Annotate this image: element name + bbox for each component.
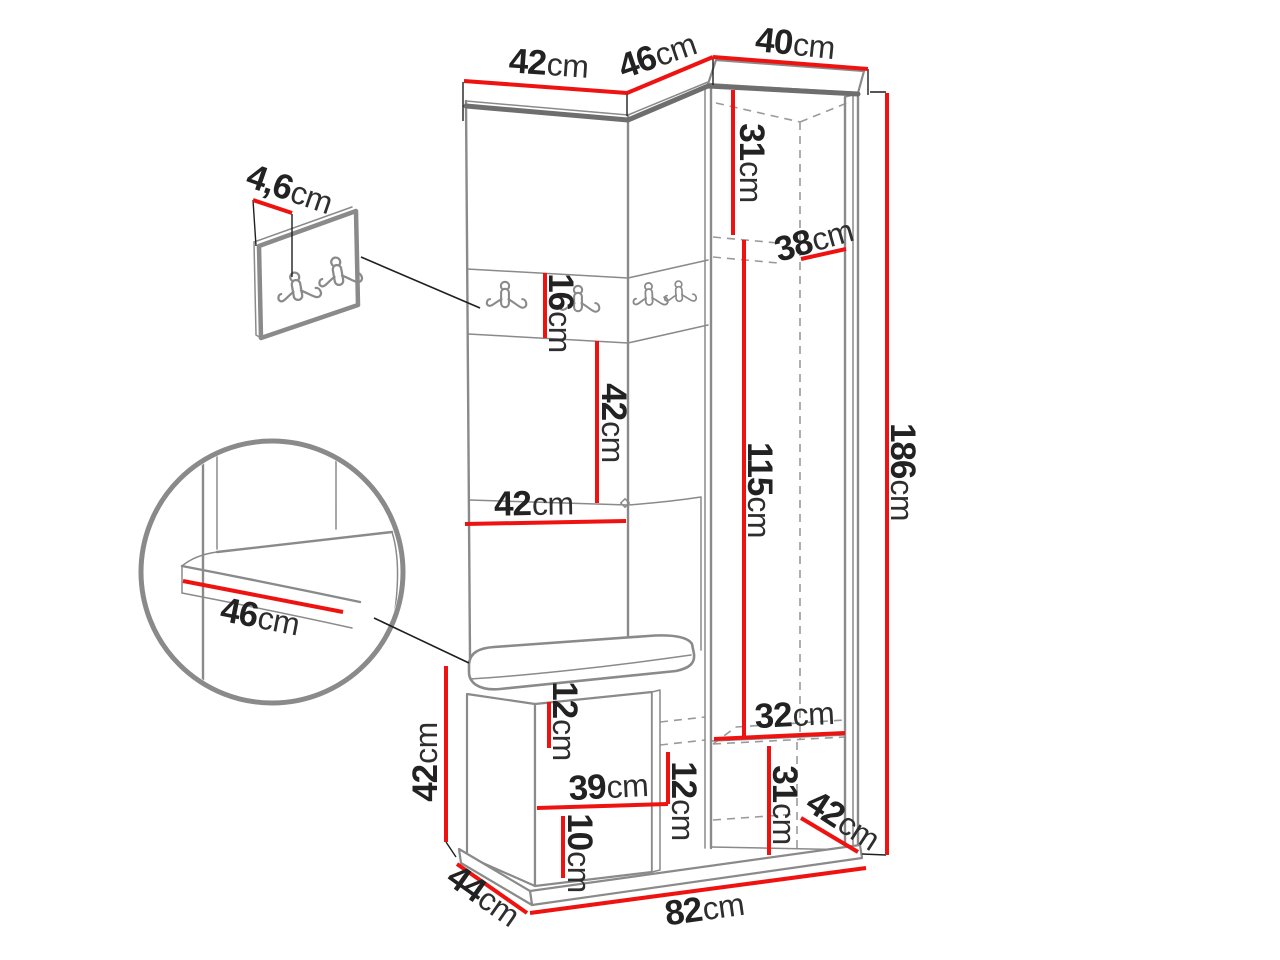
dimension-label-total-height: 186cm (883, 423, 922, 521)
wall-hook-panel-detail (254, 207, 363, 338)
leader-wall-panel-to-unit (361, 257, 480, 308)
angled-panel-face (628, 82, 708, 658)
dimension-label-cabinet-lower-width: 32cm (754, 693, 836, 736)
dimension-label-bench-top-clearance: 12cm (545, 681, 584, 761)
dimension-label-base-width: 82cm (662, 884, 746, 934)
dimension-label-top-angled-width: 46cm (613, 24, 701, 87)
diagram-canvas: 42cm 46cm 40cm 4,6cm 31cm 38cm 16cm 42cm… (0, 0, 1280, 960)
dimension-label-cabinet-lower-height: 31cm (765, 765, 804, 845)
bench-right-side (652, 690, 660, 872)
dimension-label-cabinet-upper-height: 31cm (732, 123, 771, 203)
dimension-label-bench-bottom-clearance: 10cm (560, 813, 599, 893)
dimension-label-seat-depth: 42cm (494, 483, 574, 523)
dimension-label-cabinet-door-height: 115cm (740, 442, 779, 538)
bench-left-side (467, 694, 535, 886)
dimension-label-bench-shelf-spacing: 12cm (664, 761, 703, 841)
dimension-label-top-cabinet-width: 40cm (754, 20, 837, 67)
seat-corner-detail-circle (141, 441, 403, 703)
front-panel-face (466, 101, 628, 658)
dimension-label-top-left-width: 42cm (508, 41, 590, 85)
dimension-label-bench-height: 42cm (406, 722, 445, 802)
dimension-line-top-left-width (464, 81, 627, 93)
dimension-label-bench-inner-width: 39cm (568, 765, 650, 808)
furniture-dimension-diagram: 42cm 46cm 40cm 4,6cm 31cm 38cm 16cm 42cm… (0, 0, 1280, 960)
dimension-label-backrest-height: 42cm (594, 383, 633, 463)
dimension-label-hook-strip-height: 16cm (541, 273, 580, 353)
leader-circle-to-bench (374, 618, 469, 663)
